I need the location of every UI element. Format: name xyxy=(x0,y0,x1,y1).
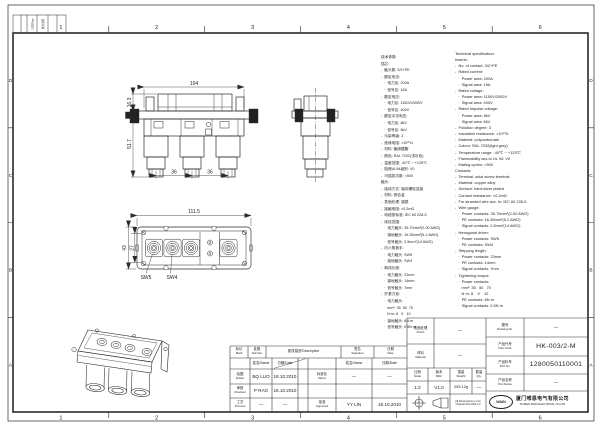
technical-spec-chinese: 技术参数: 插芯: - 触头数: 3/2+PE - 额定电流: · 电力区: 2… xyxy=(381,54,440,331)
date-subheader-left-label: 日期/Date xyxy=(278,362,293,366)
qty-value: — xyxy=(472,381,486,394)
description-header: 更改描述/Description xyxy=(266,346,341,358)
dim-label-cover-height: 16.3 xyxy=(127,97,133,107)
company-cell: WAIN 厦门唯恩电气有限公司 XIAMEN WAIN ELECTRICAL C… xyxy=(489,392,586,411)
part-code-label-en: Part Code xyxy=(498,347,511,350)
part-name-value: — xyxy=(524,374,588,391)
dim-label-body-height: 51.7 xyxy=(127,139,133,149)
grid-col-label: 4 xyxy=(347,25,350,31)
checked-label-en: Checked xyxy=(234,391,245,394)
grid-row-label: B xyxy=(589,268,592,274)
drawing-sheet: 1 2 3 4 5 6 1 2 3 4 5 6 D C B A D C B A … xyxy=(0,0,600,424)
dim-label-pitch: 36 xyxy=(171,170,177,176)
finish-label-en: Finish xyxy=(417,331,425,334)
revision-strip: 日期/Date 更改说明 xyxy=(13,15,66,33)
dimensions-note-line2: Original Size DIN A 4 xyxy=(455,403,480,407)
drawing-no-label: 图号Drawing No. xyxy=(486,318,524,337)
dim-label-width: 104 xyxy=(190,81,199,87)
drawing-no-value: — xyxy=(524,318,588,337)
grid-col-label: 3 xyxy=(251,416,254,422)
part-no-label-en: Port No. xyxy=(500,365,511,368)
process-label: 工艺Process xyxy=(230,398,250,412)
weight-label-en: Weight xyxy=(457,375,466,378)
side-view xyxy=(292,88,338,182)
weight-label: 重量Weight xyxy=(450,368,472,381)
qty-label-en: Qty. xyxy=(476,375,481,378)
checked-name: P RAO xyxy=(250,384,272,398)
company-name-en: XIAMEN WAIN ELECTRICAL CO.LTD xyxy=(520,403,566,406)
grid-col-label: 5 xyxy=(443,416,446,422)
part-no-value: 1280050110001 xyxy=(524,356,588,374)
weight-value: 293.12g xyxy=(450,381,472,394)
grid-col-label: 1 xyxy=(59,416,62,422)
stand-label-en: Stand. xyxy=(318,377,326,380)
name-subheader-left-label: 姓名/Name xyxy=(253,362,270,366)
drawn-label: 绘图Drawn xyxy=(230,369,250,384)
finish-label: 表面处理Finish xyxy=(407,318,434,344)
scale-value: 1:2 xyxy=(407,381,428,394)
grid-row-label: D xyxy=(9,78,13,84)
grid-row-label: A xyxy=(589,363,593,369)
isometric-view xyxy=(72,329,169,398)
checked-date: 18.10.2010 xyxy=(272,384,298,398)
approved-name: YY LIN xyxy=(336,398,372,412)
part-name-label: 产品名称Port Name xyxy=(486,374,524,391)
description-header-label: 更改描述/Description xyxy=(288,350,319,354)
process-name: — xyxy=(250,398,272,412)
part-code-label: 产品代号Part Code xyxy=(486,337,524,356)
top-view: 111.5 43 27 SW5 SW4 xyxy=(122,209,252,281)
scale-label-en: Scale xyxy=(414,375,421,378)
scale-label: 比例Scale xyxy=(407,368,428,381)
grid-row-label: C xyxy=(589,173,593,179)
date-subheader-left: 日期/Date xyxy=(272,358,298,369)
grid-col-label: 3 xyxy=(251,25,254,31)
qty-label: 数量Qty. xyxy=(472,368,486,381)
dim-label-plan-inner: 27 xyxy=(130,245,136,251)
approved-label-en: Approved xyxy=(316,405,328,408)
grid-row-label: C xyxy=(9,173,13,179)
drawing-no-label-en: Drawing No. xyxy=(497,328,513,331)
front-view: 104 16.3 51.7 36 36 xyxy=(126,81,259,179)
signature-header: 签名 Signature xyxy=(341,346,374,358)
material-label-en: Material xyxy=(415,356,425,359)
dim-label-plan-width: 111.5 xyxy=(188,209,200,215)
approved-label: 批准Approved xyxy=(308,398,336,412)
rev-label-en: REV. xyxy=(436,375,442,378)
drawn-label-en: Drawn xyxy=(236,377,244,380)
material-label: 材料Material xyxy=(407,344,434,368)
revision-strip-label: 日期/Date xyxy=(31,18,35,30)
part-no-label: 产品料号Port No. xyxy=(486,356,524,374)
drawn-name: BQ LUO xyxy=(250,369,272,384)
company-logo: WAIN xyxy=(489,395,513,409)
date-header-en: Date xyxy=(387,352,393,355)
grid-col-label: 6 xyxy=(539,416,542,422)
label-sw5: SW5 xyxy=(141,275,152,281)
approved-date: 18.10.2010 xyxy=(372,398,407,412)
rev-label: 版本REV. xyxy=(428,368,450,381)
drawn-date: 18.10.2010 xyxy=(272,369,298,384)
checked-label: 审核Checked xyxy=(230,384,250,398)
technical-spec-english: Technical specification: Inserts: - No. … xyxy=(455,51,529,310)
part-code-value: HK-003/2-M xyxy=(524,337,588,356)
part-name-label-en: Port Name xyxy=(498,383,512,386)
revision-strip-label: 更改说明 xyxy=(41,18,45,29)
rev-value: V1.0 xyxy=(428,381,450,394)
mark-header: 标记 Mark xyxy=(230,346,248,358)
date-subheader-right-label: 日期/Date xyxy=(382,362,397,366)
grid-col-label: 2 xyxy=(155,25,158,31)
number-header: 处数 Number xyxy=(248,346,266,358)
signature-header-en: Signature xyxy=(351,352,363,355)
material-value: — xyxy=(434,344,486,368)
number-header-en: Number xyxy=(252,352,262,355)
name-subheader-left: 姓名/Name xyxy=(250,358,272,369)
grid-col-label: 4 xyxy=(347,416,350,422)
stand-name: — xyxy=(336,369,372,384)
date-header: 日期 Date xyxy=(374,346,407,358)
stand-date: — xyxy=(372,369,407,384)
process-date: — xyxy=(272,398,298,412)
dimensions-note: All Dimensions in mm Original Size DIN A… xyxy=(450,394,486,412)
process-label-en: Process xyxy=(235,405,245,408)
dim-label-plan-outer: 43 xyxy=(122,245,128,251)
name-subheader-right-label: 姓名/Name xyxy=(346,362,363,366)
finish-value: — xyxy=(434,318,486,344)
grid-col-label: 2 xyxy=(155,416,158,422)
grid-row-label: D xyxy=(589,78,593,84)
date-subheader-right: 日期/Date xyxy=(372,358,407,369)
name-subheader-right: 姓名/Name xyxy=(336,358,372,369)
label-sw4: SW4 xyxy=(167,275,178,281)
grid-row-label: B xyxy=(9,268,12,274)
grid-col-label: 1 xyxy=(59,25,62,31)
mark-header-en: Mark xyxy=(236,352,242,355)
grid-col-label: 5 xyxy=(443,25,446,31)
dim-label-pitch: 36 xyxy=(207,170,213,176)
stand-label: 标准化Stand. xyxy=(308,369,336,384)
grid-col-label: 6 xyxy=(539,25,542,31)
